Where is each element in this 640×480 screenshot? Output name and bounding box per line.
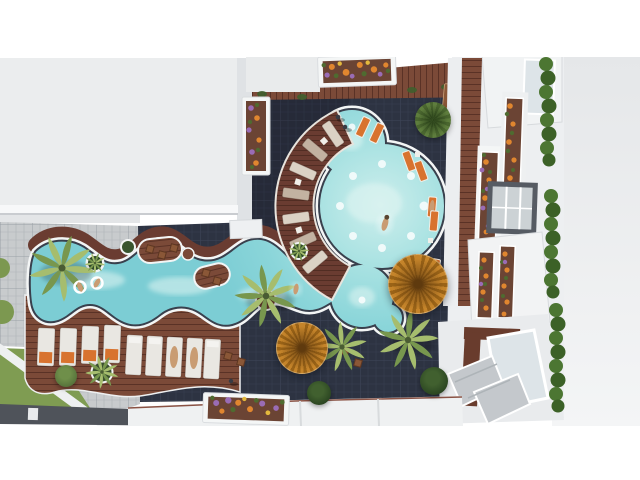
roof-west — [0, 58, 253, 223]
swimmer-river-3 — [290, 282, 302, 296]
round-bush-south-1 — [420, 367, 448, 395]
thatched-umbrella-large — [388, 254, 448, 314]
thatched-umbrella-small — [276, 322, 328, 374]
planter-south — [203, 393, 290, 426]
white-margin-south — [0, 426, 640, 480]
window-east — [486, 181, 538, 235]
planter-north — [318, 55, 397, 88]
round-tree-north — [415, 102, 451, 138]
roof-east-flat — [552, 56, 640, 428]
round-bush-patio — [55, 365, 77, 387]
flower-box-east-4 — [498, 246, 516, 318]
facade-east — [438, 56, 566, 424]
white-margin-north — [0, 0, 640, 57]
flower-box-east-3 — [477, 252, 494, 318]
aerial-render — [0, 0, 640, 480]
round-bush-south-2 — [307, 381, 331, 405]
